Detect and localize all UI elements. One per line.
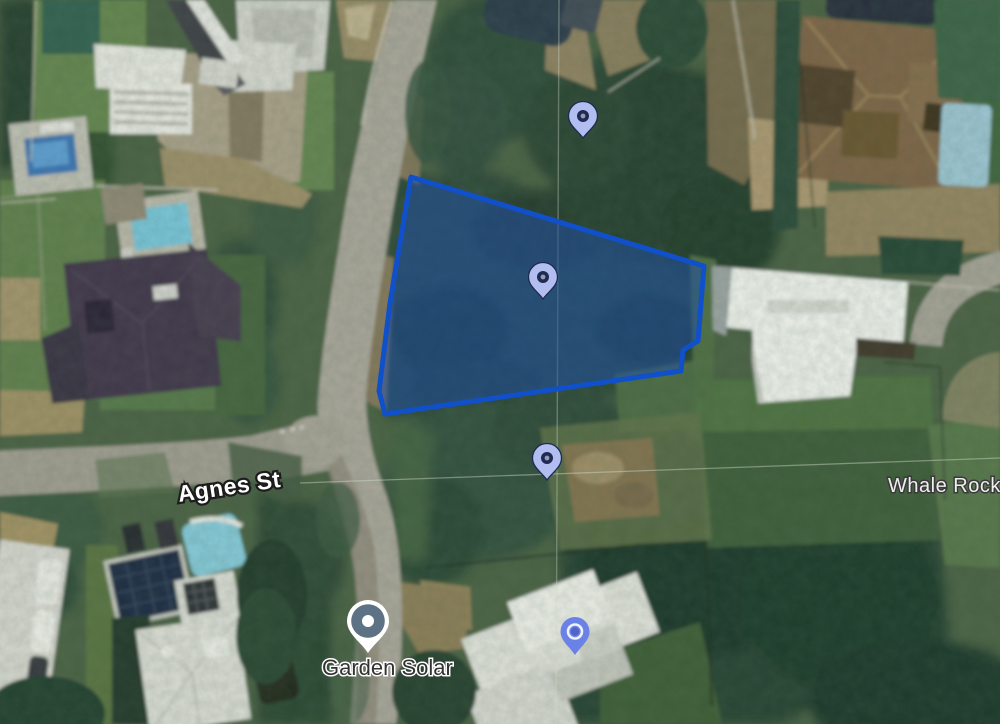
- svg-text:Garden Solar: Garden Solar: [322, 655, 453, 680]
- svg-text:Whale Rock: Whale Rock: [888, 475, 1000, 497]
